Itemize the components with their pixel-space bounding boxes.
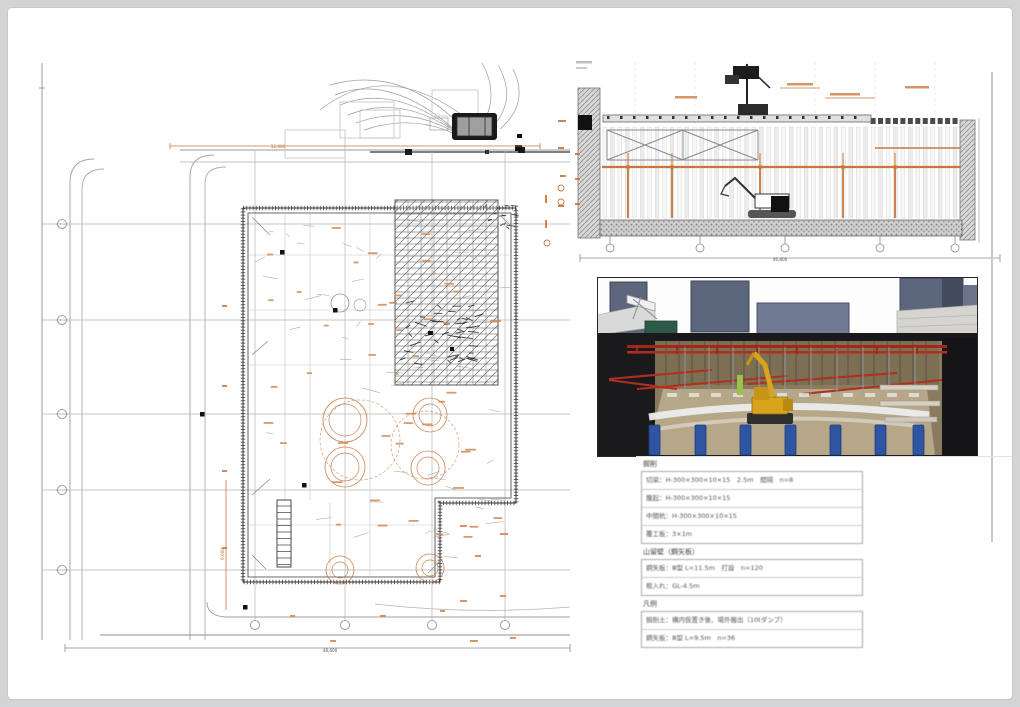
notes-group3-title: 凡例 [643,599,863,610]
notes-group2-title: 山留壁（鋼矢板） [643,547,863,558]
sheet-border-line [991,72,993,542]
notes-group3-table: 掘削土：構内仮置き後、場外搬出（10tダンプ）鋼矢板：Ⅲ型 L=9.5m n=3… [641,611,863,648]
notes-row: 腹起：H-300×300×10×15 [642,489,862,507]
screenshot-frame: 48,600 32,400 9,000 46,800 掘削 切梁：H-300×3… [0,0,1020,707]
site-plan-linework [39,63,570,652]
notes-group1-title: 掘削 [643,459,863,470]
plan-bottom-dimension: 48,600 [323,648,338,653]
section-bottom-dimension: 46,800 [773,257,788,262]
notes-row: 鋼矢板：Ⅲ型 L=9.5m n=36 [642,629,862,647]
plan-left-dimension: 9,000 [220,548,225,560]
section-linework [575,61,1000,262]
notes-row: 根入れ：GL-4.5m [642,577,862,595]
notes-row: 掘削土：構内仮置き後、場外搬出（10tダンプ） [642,612,862,629]
notes-group2-table: 鋼矢板：Ⅲ型 L=11.5m 打設 n=120根入れ：GL-4.5m [641,559,863,596]
notes-row: 覆工板：3×1m [642,525,862,543]
notes-row: 中間杭：H-300×300×10×15 [642,507,862,525]
notes-group1-table: 切梁：H-300×300×10×15 2.5m 間隔 n=8腹起：H-300×3… [641,471,863,544]
notes-panel: 掘削 切梁：H-300×300×10×15 2.5m 間隔 n=8腹起：H-30… [641,459,863,648]
plan-top-dimension: 32,400 [271,144,286,149]
notes-row: 切梁：H-300×300×10×15 2.5m 間隔 n=8 [642,472,862,489]
section-drawing: 46,800 [575,58,1012,265]
render-3d-scene [597,277,978,457]
notes-separator-line [636,456,1012,457]
site-plan-drawing: 48,600 32,400 9,000 [30,55,575,655]
render-3d-image [597,277,978,457]
notes-row: 鋼矢板：Ⅲ型 L=11.5m 打設 n=120 [642,560,862,577]
